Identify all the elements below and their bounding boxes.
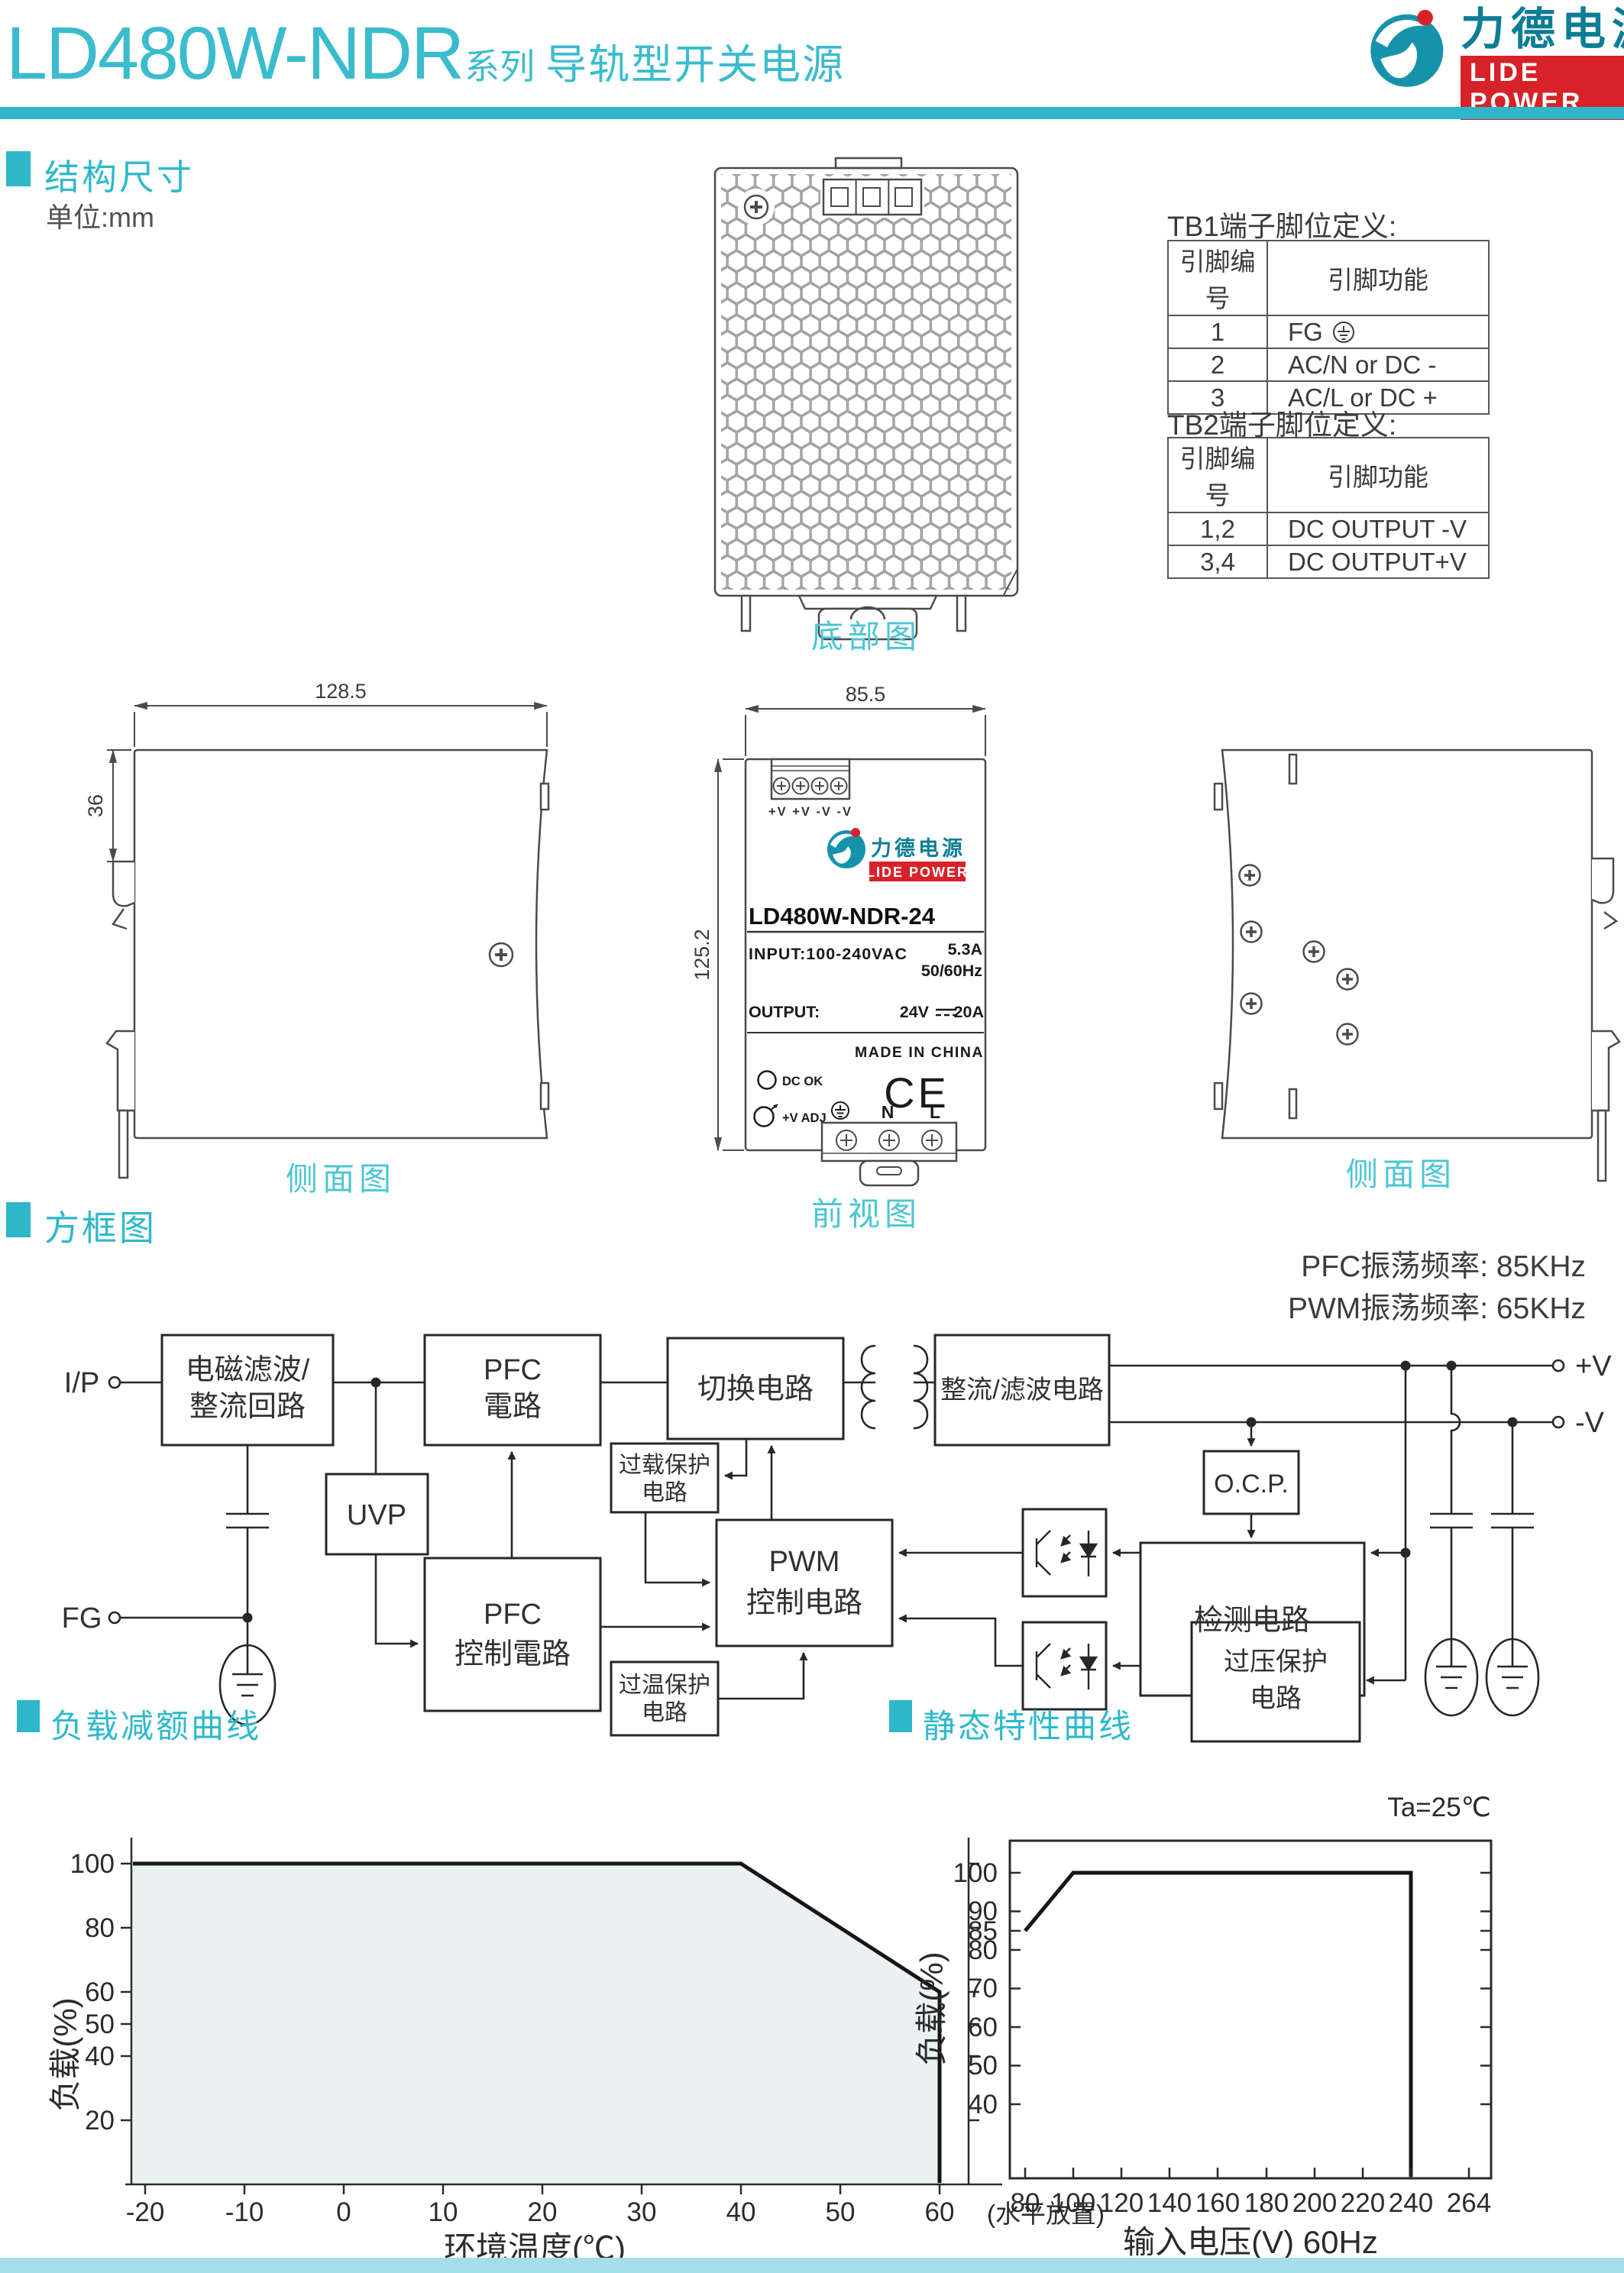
pv-terminal	[1553, 1360, 1564, 1371]
section-block-title: 方框图	[44, 1201, 157, 1251]
transformer-primary-icon	[862, 1346, 875, 1428]
din-rod	[119, 1111, 128, 1178]
emi-label-2: 整流回路	[189, 1391, 306, 1423]
pwm-box	[717, 1520, 892, 1646]
top-tab	[836, 158, 901, 168]
front-view-label: 前视图	[811, 1188, 921, 1235]
earth-icon	[1331, 319, 1357, 345]
y-tick-label: 60	[85, 1977, 115, 2007]
detect-label: 检测电路	[1194, 1605, 1310, 1637]
section-derating-bullet	[17, 1700, 40, 1732]
uvp-label: UVP	[347, 1499, 406, 1531]
screw-icon	[738, 189, 775, 225]
ta-label: Ta=25℃	[1387, 1793, 1491, 1822]
x-tick-label: 160	[1195, 2188, 1240, 2218]
dim-front-width-label: 85.5	[846, 683, 886, 706]
bottom-view-drawing	[709, 157, 1025, 653]
x-axis-label: 输入电压(V) 60Hz	[1123, 2224, 1378, 2260]
x-tick-label: 100	[1051, 2188, 1095, 2218]
emi-box	[162, 1335, 333, 1445]
terminal-block-top	[772, 759, 849, 799]
y-tick-label: 80	[968, 1935, 998, 1965]
y-tick-label: 70	[968, 1974, 998, 2003]
pfc-freq-label: PFC振荡频率: 85KHz	[1069, 1246, 1586, 1288]
section-structure-bullet	[6, 151, 31, 186]
din-clip-lower	[1592, 1031, 1619, 1111]
y-tick-label: 40	[968, 2090, 998, 2119]
x-tick-label: 10	[429, 2197, 458, 2227]
overvolt-label-2: 电路	[1250, 1684, 1302, 1713]
made-in-label: MADE IN CHINA	[855, 1044, 984, 1061]
case-outline	[1222, 750, 1592, 1138]
side-view-left-drawing: 128.5 36	[84, 686, 611, 1175]
overload-label-1: 过载保护	[619, 1453, 710, 1478]
x-tick-label: 140	[1147, 2188, 1192, 2218]
y-tick-label: 40	[85, 2042, 115, 2071]
output-voltage: 24V	[900, 1003, 930, 1021]
nv-label: -V	[1575, 1407, 1605, 1439]
x-tick-labels: -20 -10 0 10 20 30 40 50 60	[126, 2197, 955, 2227]
din-spike	[1604, 912, 1616, 929]
func-cell: AC/N or DC -	[1267, 348, 1489, 381]
case-outline	[134, 750, 547, 1138]
section-structure-title: 结构尺寸	[44, 150, 194, 200]
header-accent-bar	[0, 107, 1624, 119]
pfc-label-1: PFC	[484, 1354, 542, 1386]
din-clip-lower	[107, 1031, 134, 1111]
fg-label: FG	[1288, 318, 1323, 347]
y-tick-label: 100	[953, 1858, 998, 1888]
x-tick-label: -10	[225, 2197, 264, 2227]
side-view-right-drawing	[1207, 686, 1624, 1175]
transformer-secondary-icon	[914, 1346, 927, 1428]
pfc-ctrl-box	[425, 1558, 600, 1711]
static-section-title: 静态特性曲线	[923, 1700, 1134, 1748]
table-row: 1,2 DC OUTPUT -V	[1168, 512, 1489, 545]
overtemp-label-1: 过温保护	[619, 1673, 710, 1698]
x-tick-label: -20	[126, 2197, 165, 2227]
x-tick-label: 240	[1389, 2188, 1433, 2218]
pin-cell: 1,2	[1168, 512, 1267, 545]
title-subtitle: 导轨型开关电源	[545, 31, 845, 91]
y-tick-label: 50	[85, 2009, 115, 2039]
ip-label: I/P	[64, 1367, 99, 1399]
neutral-label: N	[882, 1102, 894, 1122]
table-row: 3,4 DC OUTPUT+V	[1168, 545, 1489, 578]
front-logo-en: LIDE POWER	[866, 865, 969, 880]
rectifier-label: 整流/滤波电路	[940, 1376, 1103, 1405]
pwm-label-2: 控制电路	[746, 1587, 862, 1619]
y-tick-label: 100	[70, 1849, 115, 1879]
x-tick-label: 50	[826, 2197, 856, 2227]
fg-label: FG	[62, 1602, 102, 1634]
section-static-bullet	[889, 1700, 912, 1732]
tb2-table: 引脚编号 引脚功能 1,2 DC OUTPUT -V 3,4 DC OUTPUT…	[1167, 437, 1490, 579]
x-tick-label: 120	[1099, 2188, 1144, 2218]
func-cell: DC OUTPUT -V	[1267, 512, 1489, 545]
x-tick-label: 220	[1341, 2188, 1385, 2218]
pwm-label-1: PWM	[769, 1546, 840, 1578]
tb1-title: TB1端子脚位定义:	[1167, 203, 1396, 244]
din-hook-top	[113, 862, 134, 906]
optocoupler-box	[1023, 1509, 1106, 1596]
plot-frame	[1010, 1841, 1491, 2178]
fg-terminal	[109, 1612, 120, 1623]
page-title: LD480W-NDR 系列 导轨型开关电源	[6, 11, 845, 96]
bottom-accent-strip	[0, 2258, 1624, 2273]
output-current: 20A	[954, 1003, 984, 1021]
ground-icon	[1425, 1639, 1477, 1715]
vent-hex-pattern	[721, 174, 1011, 590]
output-label: OUTPUT:	[749, 1003, 820, 1021]
input-freq: 50/60Hz	[921, 962, 982, 980]
x-tick-label: 20	[528, 2197, 558, 2227]
pv-label: +V	[1575, 1350, 1612, 1382]
screw-icon	[490, 943, 513, 966]
logo-text: 力德电源 LIDE POWER	[1461, 6, 1624, 120]
ticks	[1010, 1873, 1491, 2178]
logo-cn: 力德电源	[1461, 6, 1624, 53]
y-tick-labels: 100 90 85 80 70 60 50 40	[953, 1858, 998, 2119]
logo-red-dot	[1417, 10, 1433, 26]
pin-header: 引脚编号	[1168, 241, 1267, 315]
logo-icon	[1367, 6, 1450, 89]
x-tick-label: 40	[726, 2197, 756, 2227]
capacitor-icon	[1451, 1366, 1460, 1514]
func-header: 引脚功能	[1267, 438, 1489, 512]
ip-terminal	[109, 1377, 120, 1388]
datasheet-page: LD480W-NDR 系列 导轨型开关电源 力德电源 LIDE POWER 结构…	[0, 0, 1624, 2273]
bottom-connector	[820, 176, 924, 218]
v-adj-label: +V ADJ	[782, 1111, 827, 1125]
nv-terminal	[1553, 1417, 1564, 1427]
table-header-row: 引脚编号 引脚功能	[1168, 241, 1489, 315]
pin-cell: 3,4	[1168, 545, 1267, 578]
din-hook-top	[1592, 858, 1613, 903]
y-tick-label: 80	[85, 1913, 115, 1943]
static-chart: Ta=25℃ 100 90 85 80 70 60 50 40 80	[886, 1780, 1624, 2273]
func-cell: DC OUTPUT+V	[1267, 545, 1489, 578]
front-logo-red-dot	[851, 828, 860, 837]
dim-front-height-label: 125.2	[691, 929, 713, 981]
x-tick-label: 180	[1244, 2188, 1289, 2218]
x-tick-label: 0	[336, 2197, 351, 2227]
switch-label: 切换电路	[697, 1373, 814, 1405]
din-spike	[113, 909, 127, 929]
pfc-ctrl-label-2: 控制電路	[455, 1638, 571, 1670]
table-header-row: 引脚编号 引脚功能	[1168, 438, 1489, 512]
model-label: LD480W-NDR-24	[749, 903, 936, 930]
x-tick-labels: 80 100 120 140 160 180 200 220 240 264	[1011, 2188, 1492, 2218]
y-tick-label: 60	[968, 2013, 998, 2042]
dc-ok-label: DC OK	[782, 1075, 823, 1088]
x-tick-label: 30	[627, 2197, 657, 2227]
side-view-left-label: 侧面图	[286, 1153, 396, 1200]
optocoupler-box	[1023, 1622, 1106, 1709]
x-tick-label: 264	[1447, 2188, 1491, 2218]
pin-header: 引脚编号	[1168, 438, 1267, 512]
front-logo-cn: 力德电源	[871, 837, 966, 860]
overload-label-2: 电路	[642, 1480, 687, 1505]
tb1-table: 引脚编号 引脚功能 1 FG 2 AC/N or DC - 3 AC/L or …	[1167, 240, 1490, 415]
dim-36-label: 36	[84, 794, 107, 817]
emi-label-1: 电磁滤波/	[186, 1354, 310, 1386]
pin-cell: 1	[1168, 315, 1267, 348]
func-header: 引脚功能	[1267, 241, 1489, 315]
overvolt-label-1: 过压保护	[1224, 1647, 1328, 1676]
ground-icon	[1487, 1639, 1538, 1715]
ocp-label: O.C.P.	[1214, 1470, 1289, 1499]
input-current: 5.3A	[948, 940, 982, 959]
y-axis-label: 负载(%)	[914, 1951, 949, 2065]
title-series: 系列	[464, 39, 535, 89]
x-tick-label: 80	[1011, 2188, 1040, 2218]
input-label: INPUT:100-240VAC	[749, 945, 907, 963]
dim-width-label: 128.5	[315, 680, 367, 703]
y-tick-label: 50	[968, 2051, 998, 2081]
derating-section-title: 负载减额曲线	[50, 1700, 261, 1748]
side-view-right-label: 侧面图	[1346, 1149, 1456, 1195]
func-cell: FG	[1267, 315, 1489, 348]
static-curve	[1025, 1873, 1411, 2177]
y-tick-label: 20	[85, 2106, 115, 2136]
bottom-view-label: 底部图	[811, 611, 921, 658]
pfc-label-2: 電路	[484, 1391, 542, 1423]
terminal-block-bottom	[822, 1123, 956, 1161]
pin-cell: 2	[1168, 348, 1267, 381]
front-view-drawing: 85.5 125.2 +V +V -V -V 力德电源 LIDE POWER L…	[687, 686, 1047, 1193]
terminals-top-label: +V +V -V -V	[768, 805, 852, 819]
title-model: LD480W-NDR	[6, 11, 463, 96]
overtemp-label-2: 电路	[642, 1700, 687, 1725]
din-rod	[1598, 1111, 1606, 1181]
section-block-bullet	[6, 1202, 31, 1237]
line-label: L	[930, 1102, 940, 1122]
unit-label: 单位:mm	[46, 196, 154, 235]
table-row: 1 FG	[1168, 315, 1489, 348]
pfc-ctrl-label-1: PFC	[484, 1599, 542, 1631]
overvolt-box	[1192, 1622, 1360, 1741]
table-row: 2 AC/N or DC -	[1168, 348, 1489, 381]
din-tab	[860, 1161, 918, 1185]
pfc-box	[425, 1335, 600, 1445]
logo: 力德电源 LIDE POWER	[1367, 6, 1624, 120]
x-tick-label: 200	[1292, 2188, 1337, 2218]
y-axis-label: 负载(%)	[47, 1997, 83, 2111]
